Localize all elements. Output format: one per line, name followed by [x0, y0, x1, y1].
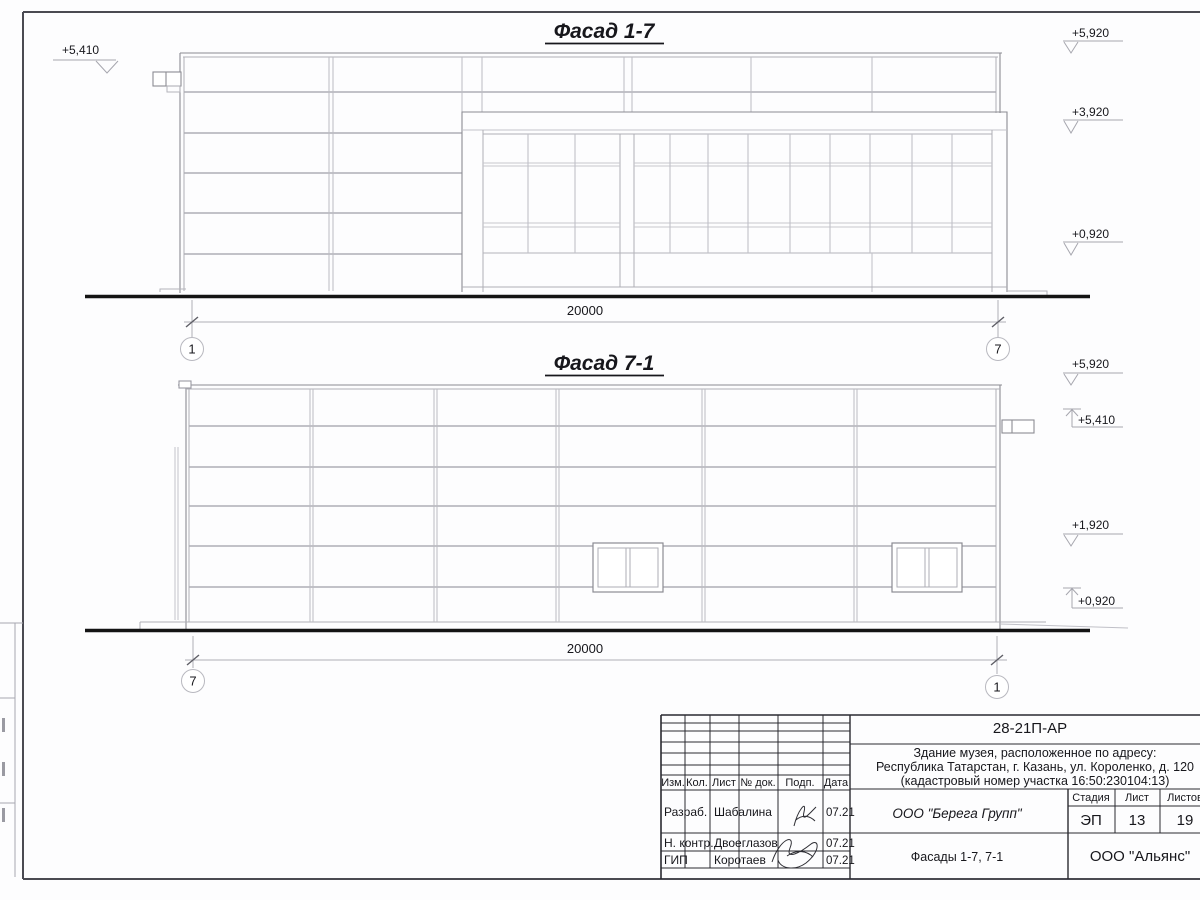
facade-7-1-dimension: 20000 7 1: [182, 636, 1009, 699]
list-value: 13: [1129, 812, 1146, 829]
col-header-podp: Подп.: [785, 777, 814, 789]
row-date: 07.21: [826, 855, 855, 867]
level-mark-left: +5,410: [62, 43, 99, 57]
grid-label-1: 1: [188, 342, 195, 357]
drawing-sheet: Фасад 1-7: [0, 0, 1200, 900]
project-address-line3: (кадастровый номер участка 16:50:230104:…: [901, 774, 1170, 788]
side-stamp-sliver: [0, 623, 23, 877]
grid-label-7: 7: [994, 342, 1001, 357]
design-company: ООО "Берега Групп": [892, 806, 1023, 821]
facade-7-1-cladding-bands: [140, 426, 1128, 629]
listov-label: Листов: [1167, 792, 1200, 804]
row-date: 07.21: [826, 838, 855, 850]
grid-label-1: 1: [993, 680, 1000, 695]
row-name-korotaev: Коротаев: [714, 853, 766, 867]
row-date: 07.21: [826, 807, 855, 819]
signature-squiggle: [772, 806, 817, 868]
dimension-value: 20000: [567, 303, 603, 318]
level-mark: +5,920: [1072, 357, 1109, 371]
list-label: Лист: [1125, 792, 1149, 804]
title-block: 28-21П-АР Здание музея, расположенное по…: [661, 715, 1200, 879]
facade-1-7-cladding-bands: [184, 92, 996, 254]
curtain-wall-mullions: [528, 134, 952, 253]
col-header-list: Лист: [712, 777, 736, 789]
row-name-dvoeglazov: Двоеглазов: [714, 836, 778, 850]
level-mark: +0,920: [1078, 594, 1115, 608]
level-mark: +3,920: [1072, 105, 1109, 119]
window: [593, 543, 663, 592]
row-role-gip: ГИП: [664, 853, 688, 867]
window: [892, 543, 962, 592]
facade-1-7: Фасад 1-7: [53, 20, 1123, 361]
downpipe: [175, 447, 178, 620]
stage-value: ЭП: [1080, 812, 1102, 829]
architectural-sheet-svg: Фасад 1-7: [0, 0, 1200, 900]
project-address-line1: Здание музея, расположенное по адресу:: [913, 746, 1156, 760]
level-mark: +1,920: [1072, 518, 1109, 532]
col-header-data: Дата: [824, 777, 849, 789]
col-header-izm: Изм.: [661, 777, 685, 789]
facade-1-7-levels: +5,410 +5,920 +3,920 +0,920: [53, 26, 1123, 255]
listov-value: 19: [1177, 812, 1194, 829]
row-role-nkontr: Н. контр.: [664, 836, 714, 850]
document-number: 28-21П-АР: [993, 720, 1067, 737]
client-org: ООО "Альянс": [1090, 848, 1190, 865]
facade-1-7-lower-block: [160, 112, 1047, 295]
grid-label-7: 7: [189, 674, 196, 689]
facade-1-7-title: Фасад 1-7: [554, 20, 656, 43]
dimension-value: 20000: [567, 641, 603, 656]
col-header-kol: Кол.: [686, 777, 708, 789]
level-mark: +0,920: [1072, 227, 1109, 241]
facade-7-1-title: Фасад 7-1: [554, 352, 655, 375]
level-mark: +5,410: [1078, 413, 1115, 427]
sheet-title: Фасады 1-7, 7-1: [911, 850, 1004, 864]
level-mark: +5,920: [1072, 26, 1109, 40]
facade-7-1-levels: +5,920 +5,410 +1,920 +0,920: [1063, 357, 1123, 608]
row-name-shabalina: Шабалина: [714, 805, 772, 819]
row-role-razrab: Разраб.: [664, 805, 707, 819]
facade-7-1: Фасад 7-1: [85, 352, 1128, 699]
project-address-line2: Республика Татарстан, г. Казань, ул. Кор…: [876, 760, 1194, 774]
col-header-ndok: № док.: [740, 777, 775, 789]
stage-label: Стадия: [1072, 792, 1110, 804]
